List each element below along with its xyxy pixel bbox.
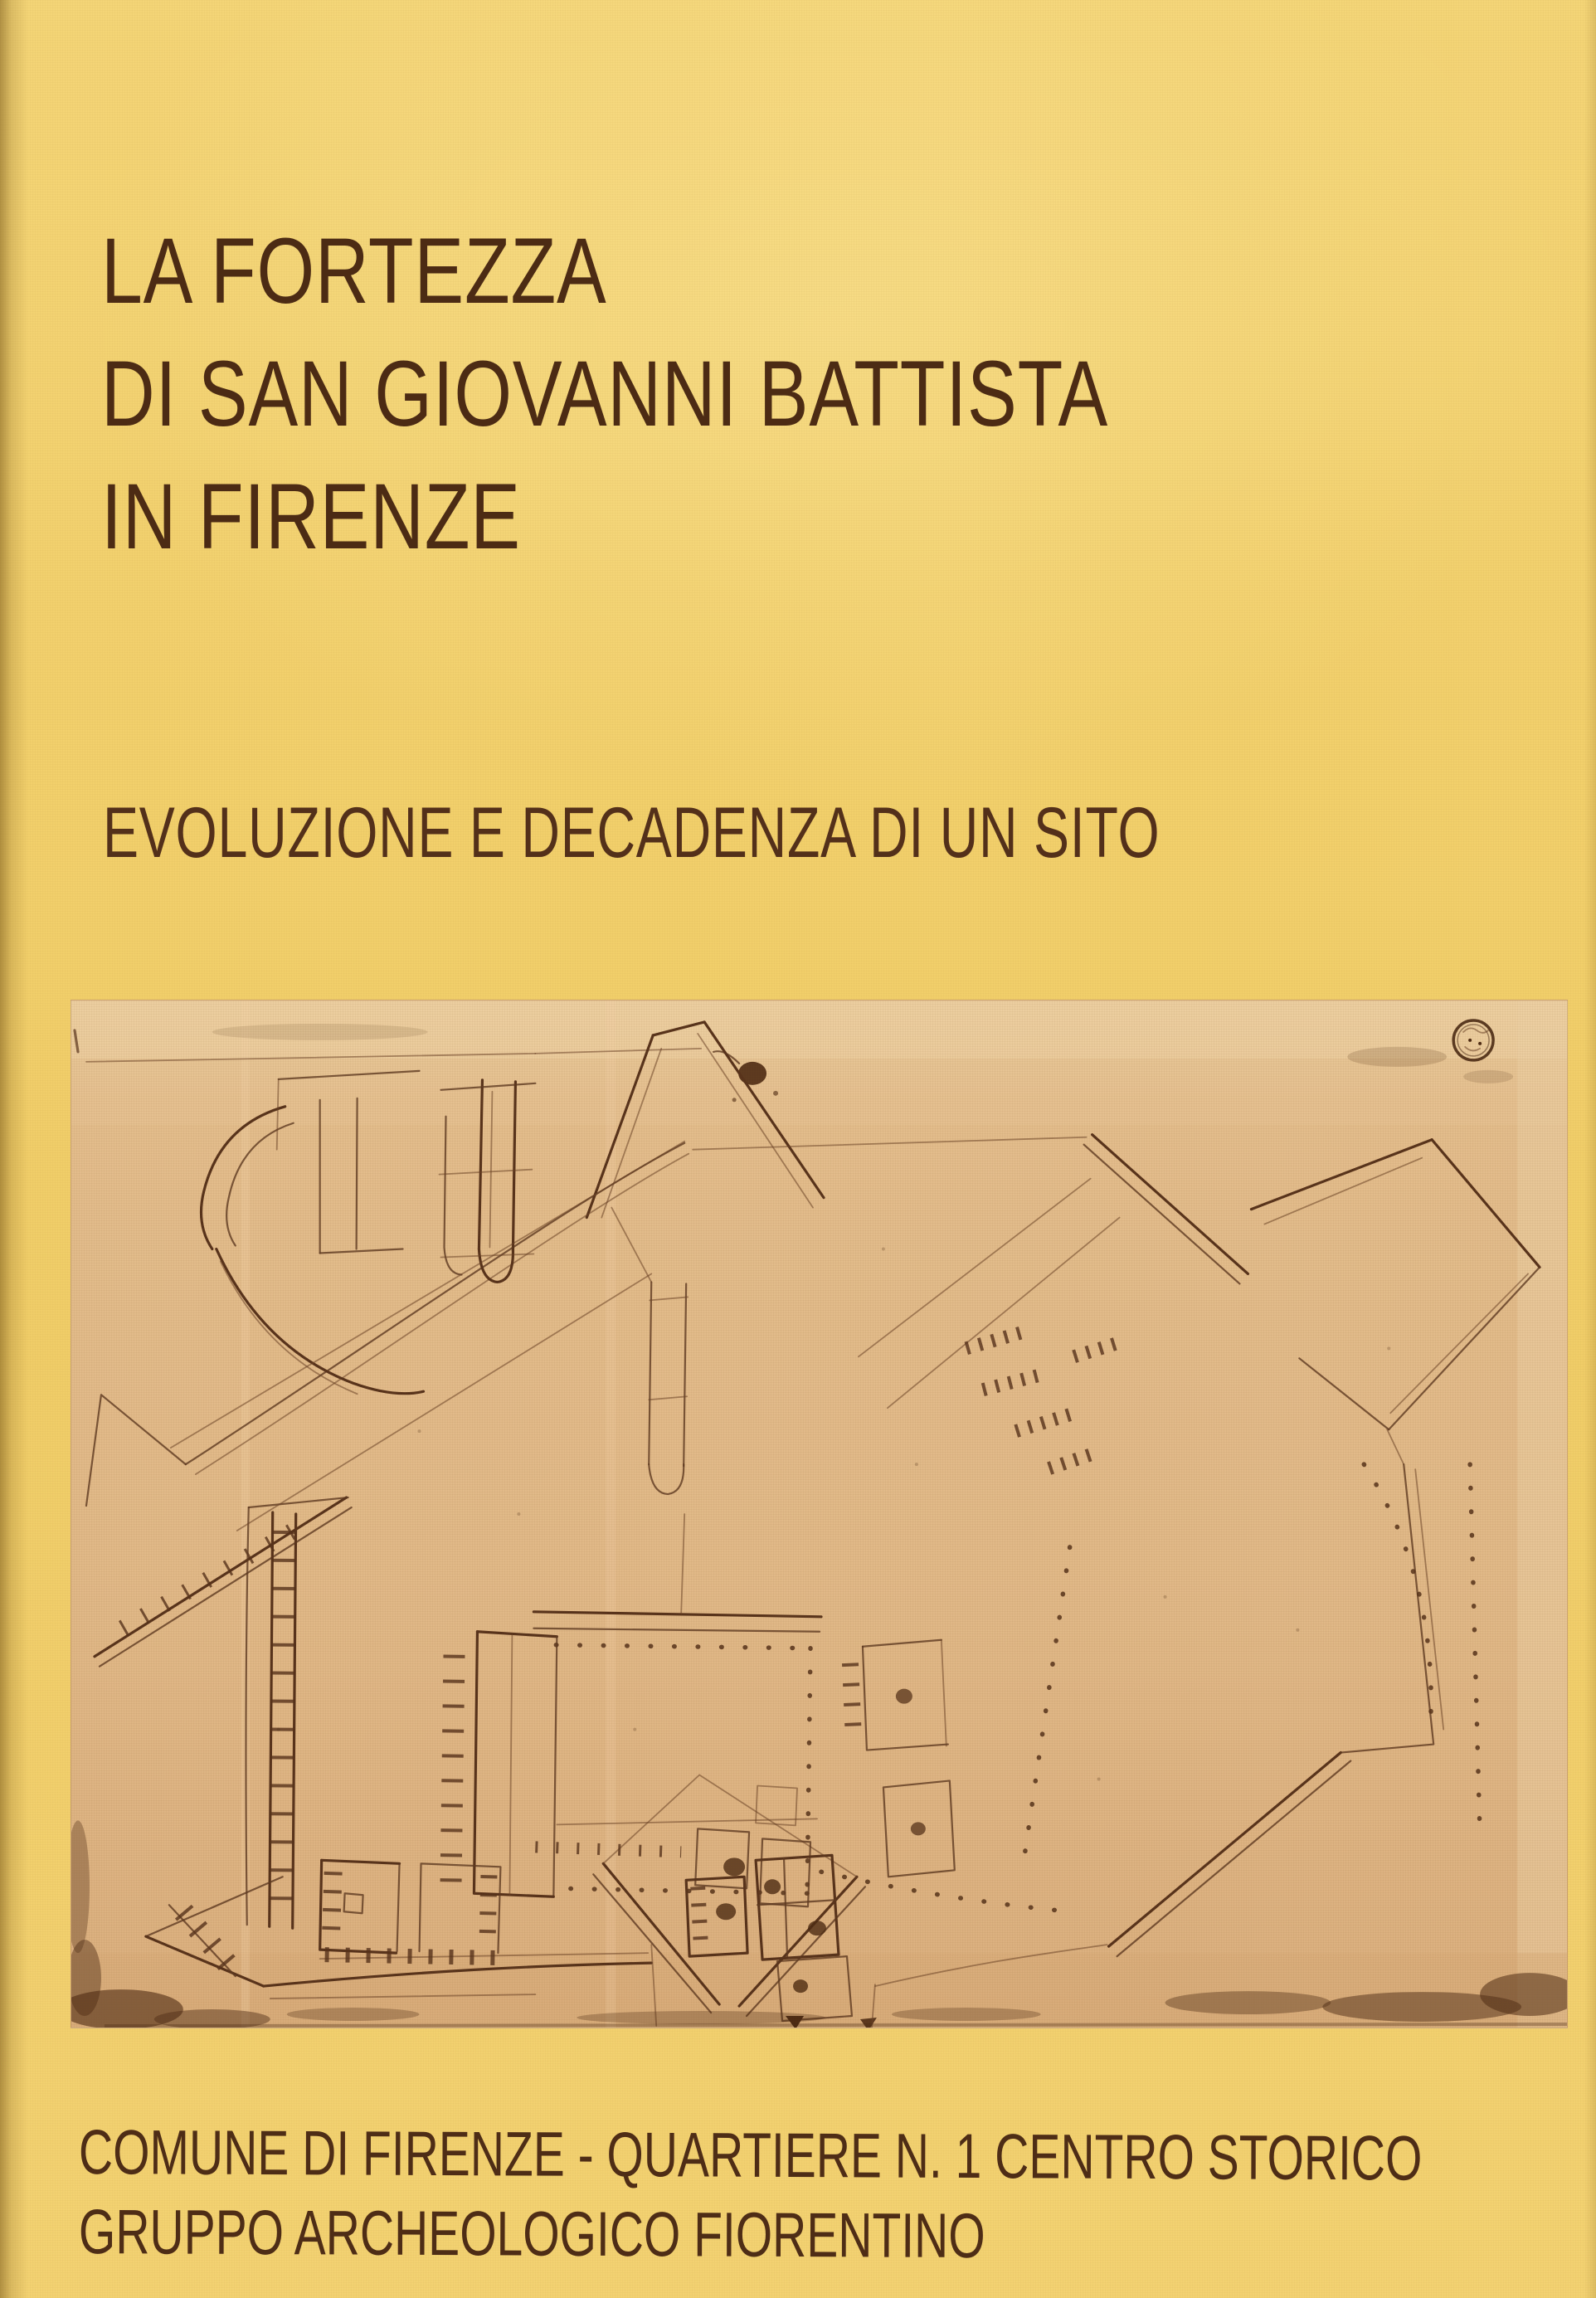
photo-texture <box>71 1001 1567 2028</box>
publisher-line-2: GRUPPO ARCHEOLOGICO FIORENTINO <box>79 2193 1423 2279</box>
fortress-plan-illustration <box>71 1000 1568 2028</box>
subtitle: EVOLUZIONE E DECADENZA DI UN SITO <box>103 791 1160 874</box>
title-block: LA FORTEZZA DI SAN GIOVANNI BATTISTA IN … <box>101 210 1360 578</box>
book-cover: LA FORTEZZA DI SAN GIOVANNI BATTISTA IN … <box>0 0 1596 2298</box>
publisher-block: COMUNE DI FIRENZE - QUARTIERE N. 1 CENTR… <box>79 2113 1596 2272</box>
publisher-line-1: COMUNE DI FIRENZE - QUARTIERE N. 1 CENTR… <box>79 2113 1423 2199</box>
title-line-2: DI SAN GIOVANNI BATTISTA <box>101 333 1108 455</box>
title-line-1: LA FORTEZZA <box>101 210 1108 333</box>
left-edge-shading <box>0 0 28 2298</box>
title-line-3: IN FIRENZE <box>101 455 1108 578</box>
right-edge-shading <box>1584 0 1596 2298</box>
